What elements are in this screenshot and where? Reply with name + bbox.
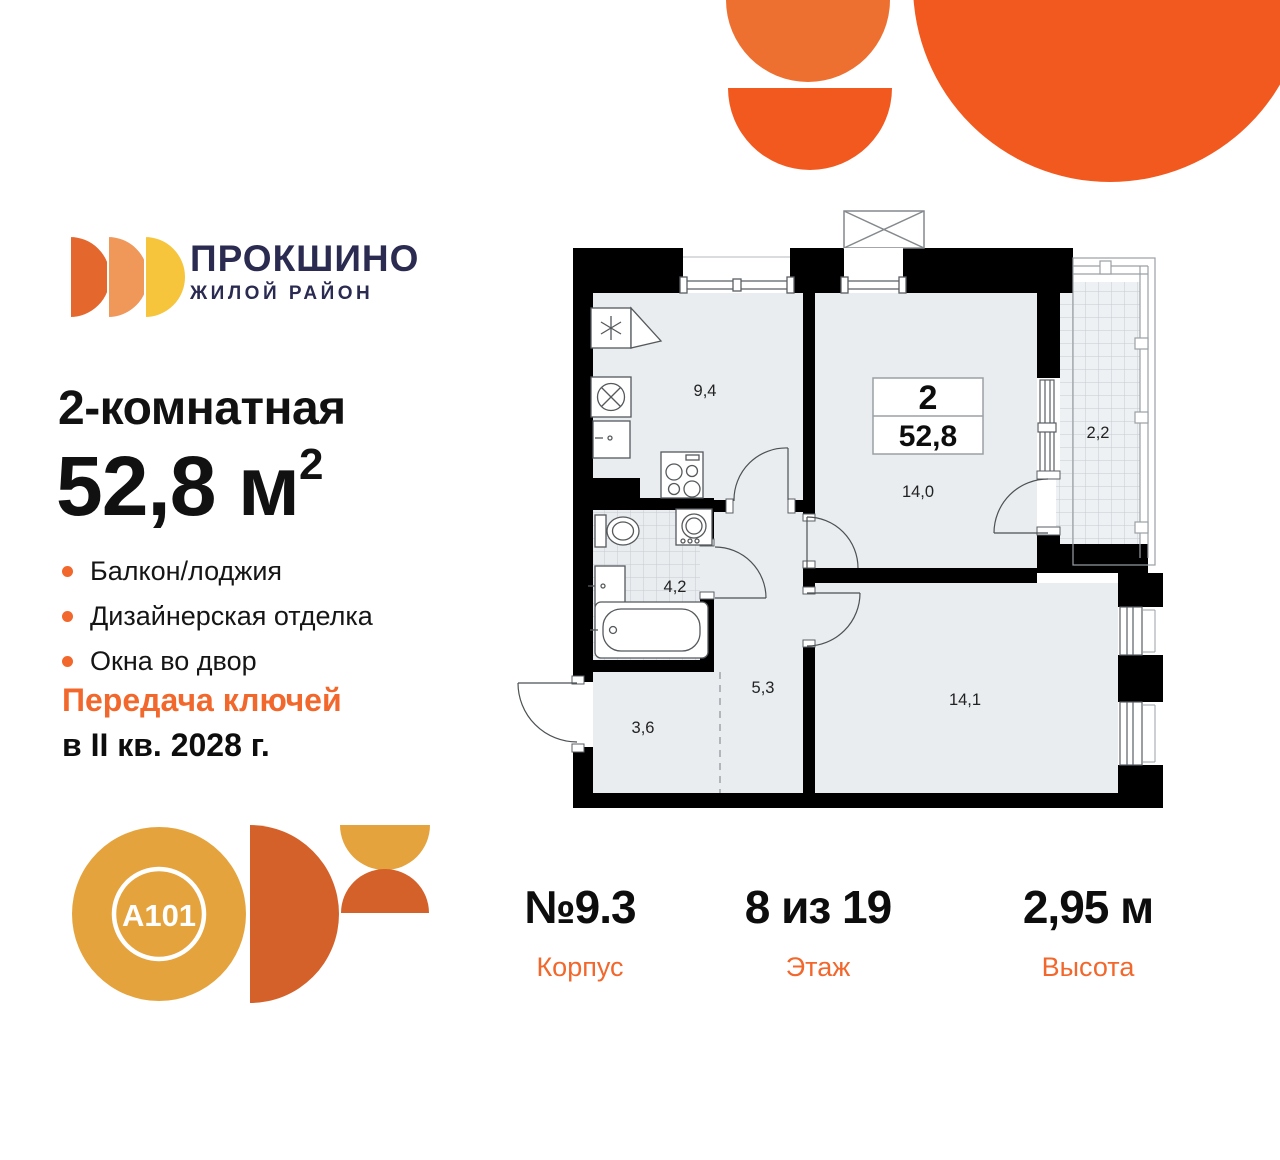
area-superscript: 2 (299, 440, 322, 489)
a101-semicircle-top (340, 825, 430, 870)
deco-top-right (700, 0, 1280, 200)
feature-item: Окна во двор (62, 639, 373, 684)
shaft-box-icon (844, 211, 924, 248)
area-value: 52,8 (56, 439, 216, 533)
stat-floor: 8 из 19 Этаж (698, 880, 938, 983)
room-label-balcony: 2,2 (1087, 424, 1110, 442)
bathtub-icon (590, 602, 708, 658)
deco-semicircle-1 (726, 0, 890, 82)
room-label-living: 14,0 (902, 483, 934, 501)
entry-door (518, 683, 577, 742)
a101-d-shape (250, 825, 339, 1003)
feature-label: Балкон/лоджия (90, 556, 282, 587)
room-label-kitchen: 9,4 (694, 382, 717, 400)
developer-logo: A101 (60, 815, 440, 1010)
bedroom-window-1 (1120, 607, 1155, 655)
stat-floor-value: 8 из 19 (698, 880, 938, 934)
brand-logo (60, 235, 190, 321)
listing-title: 2-комнатная (58, 381, 346, 436)
counter-icon (593, 421, 630, 458)
stat-height-label: Высота (968, 952, 1208, 983)
stat-floor-label: Этаж (698, 952, 938, 983)
room-label-entry: 3,6 (632, 719, 655, 737)
logo-d2 (108, 236, 149, 318)
stat-building-value: №9.3 (460, 880, 700, 934)
listing-area: 52,8 м2 (56, 438, 322, 535)
brand-tagline: ЖИЛОЙ РАЙОН (190, 284, 419, 303)
brand-name: ПРОКШИНО (190, 240, 419, 277)
room-label-bedroom: 14,1 (949, 691, 981, 709)
logo-d3 (145, 236, 186, 318)
handover-line2: в II кв. 2028 г. (62, 727, 270, 764)
plan-type-number: 2 (919, 379, 938, 417)
room-label-hallway: 5,3 (752, 679, 775, 697)
feature-label: Дизайнерская отделка (90, 601, 373, 632)
plan-summary-box: 2 52,8 (873, 378, 983, 454)
bullet-icon (62, 611, 73, 622)
area-unit: м (238, 439, 299, 533)
stove-icon (661, 452, 703, 498)
shaft-window (841, 248, 906, 293)
bullet-icon (62, 566, 73, 577)
feature-list: Балкон/лоджия Дизайнерская отделка Окна … (62, 549, 373, 684)
a101-semicircle-bottom (341, 869, 429, 913)
handover-line1: Передача ключей (62, 682, 342, 719)
deco-big-circle (913, 0, 1280, 182)
kitchen-window (680, 248, 794, 293)
living-room-window (1037, 378, 1060, 478)
feature-label: Окна во двор (90, 646, 257, 677)
plan-total-area: 52,8 (899, 420, 957, 453)
kitchen-sink-icon (591, 377, 631, 417)
room-label-bathroom: 4,2 (664, 578, 687, 596)
apartment-card: ПРОКШИНО ЖИЛОЙ РАЙОН 2-комнатная 52,8 м2… (0, 0, 1280, 1160)
floor-plan: 2 52,8 9,4 14,0 2,2 4,2 5,3 3,6 14,1 (500, 200, 1200, 820)
logo-d1 (70, 236, 111, 318)
stat-building: №9.3 Корпус (460, 880, 700, 983)
feature-item: Дизайнерская отделка (62, 594, 373, 639)
washing-machine-icon (676, 509, 712, 545)
bullet-icon (62, 656, 73, 667)
feature-item: Балкон/лоджия (62, 549, 373, 594)
stat-height: 2,95 м Высота (968, 880, 1208, 983)
balcony-tiles (1056, 282, 1140, 544)
stat-height-value: 2,95 м (968, 880, 1208, 934)
a101-text: A101 (122, 898, 196, 933)
deco-semicircle-2 (728, 88, 892, 170)
toilet-icon (595, 515, 639, 547)
stat-building-label: Корпус (460, 952, 700, 983)
bedroom-window-2 (1120, 702, 1155, 765)
